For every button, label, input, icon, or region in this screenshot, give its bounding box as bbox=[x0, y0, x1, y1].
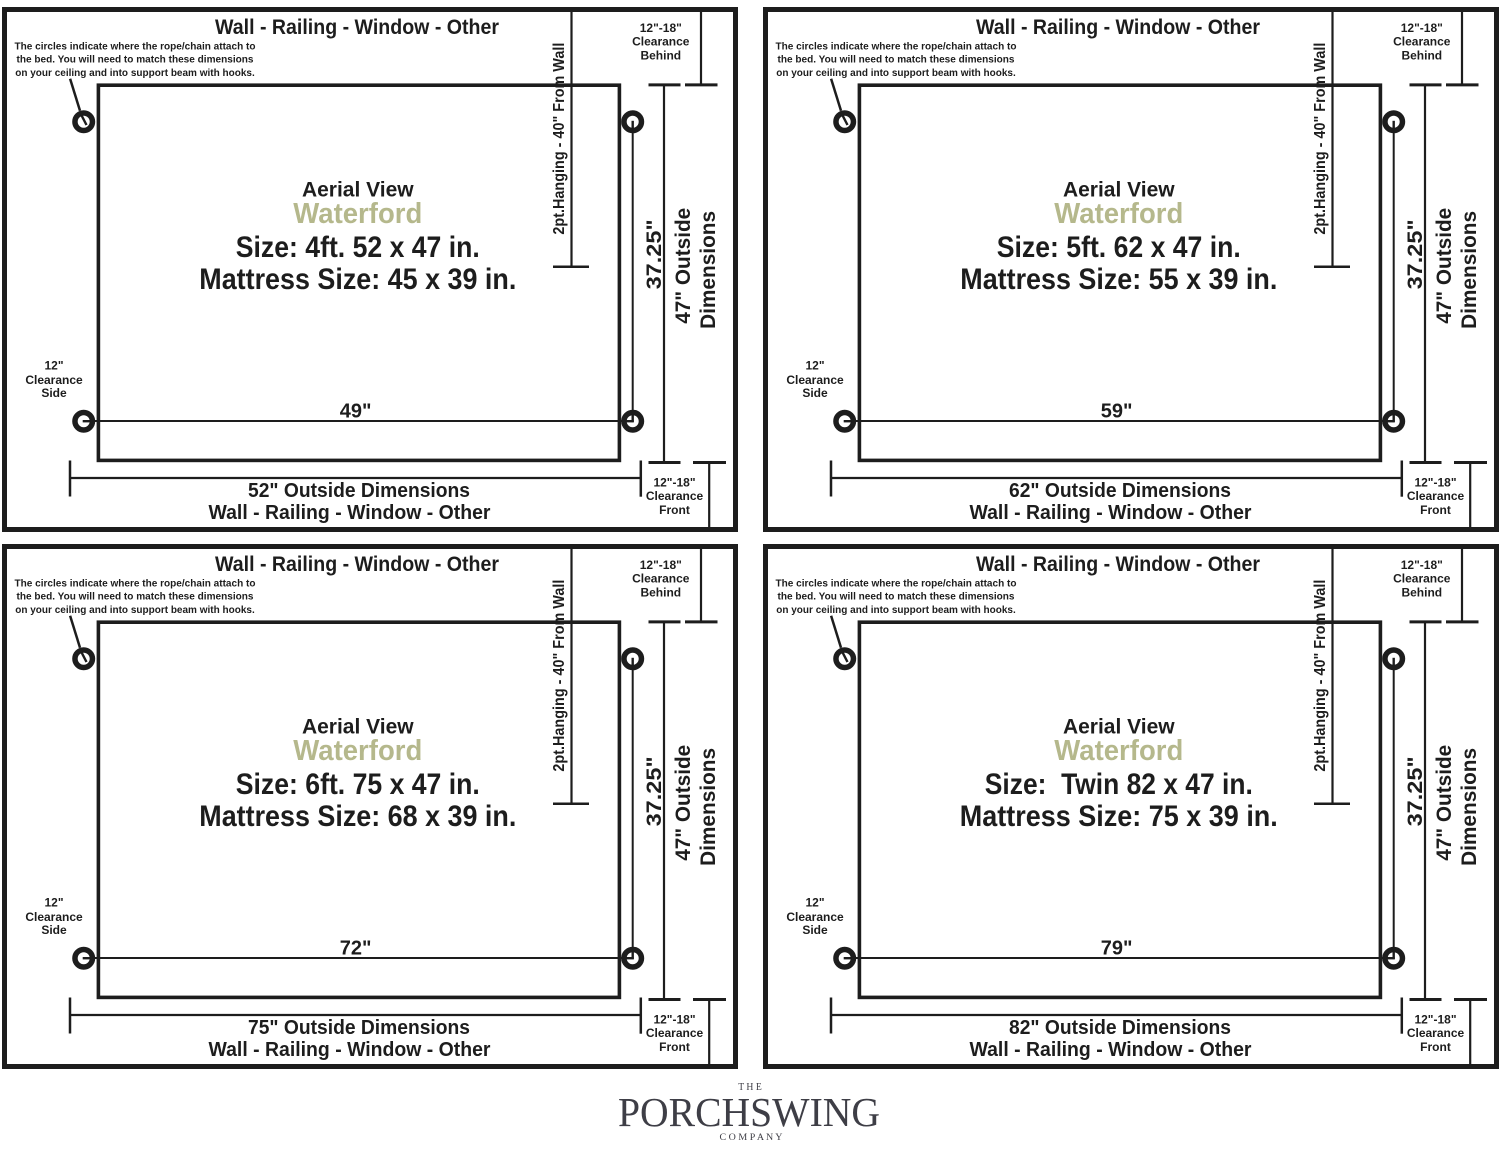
svg-text:on your ceiling and into suppo: on your ceiling and into support beam wi… bbox=[776, 604, 1016, 616]
svg-text:Clearance: Clearance bbox=[646, 1026, 704, 1040]
svg-text:Behind: Behind bbox=[640, 586, 681, 600]
svg-text:Clearance: Clearance bbox=[646, 489, 704, 503]
svg-text:The circles indicate where the: The circles indicate where the rope/chai… bbox=[15, 577, 256, 589]
svg-text:12": 12" bbox=[44, 896, 63, 910]
svg-text:Clearance: Clearance bbox=[1393, 35, 1451, 49]
svg-text:Wall - Railing - Window - Othe: Wall - Railing - Window - Other bbox=[215, 553, 499, 576]
svg-text:on your ceiling and into suppo: on your ceiling and into support beam wi… bbox=[776, 67, 1016, 79]
svg-text:12": 12" bbox=[44, 359, 63, 373]
svg-text:Clearance: Clearance bbox=[632, 572, 690, 586]
svg-text:37.25": 37.25" bbox=[643, 219, 666, 289]
svg-text:12"-18": 12"-18" bbox=[1401, 21, 1443, 35]
svg-text:2pt.Hanging - 40" From Wall: 2pt.Hanging - 40" From Wall bbox=[551, 580, 568, 772]
svg-text:Dimensions: Dimensions bbox=[1458, 748, 1481, 866]
svg-text:Dimensions: Dimensions bbox=[697, 211, 720, 329]
svg-text:Waterford: Waterford bbox=[1054, 198, 1183, 230]
svg-text:37.25": 37.25" bbox=[1404, 756, 1427, 826]
svg-text:37.25": 37.25" bbox=[1404, 219, 1427, 289]
svg-text:Waterford: Waterford bbox=[293, 198, 422, 230]
svg-text:The circles indicate where the: The circles indicate where the rope/chai… bbox=[15, 40, 256, 52]
svg-text:12"-18": 12"-18" bbox=[653, 475, 695, 489]
svg-text:82" Outside Dimensions: 82" Outside Dimensions bbox=[1009, 1017, 1231, 1039]
svg-text:Wall - Railing - Window - Othe: Wall - Railing - Window - Other bbox=[209, 1039, 491, 1061]
svg-text:Wall - Railing - Window - Othe: Wall - Railing - Window - Other bbox=[970, 1039, 1252, 1061]
svg-text:47" Outside: 47" Outside bbox=[672, 208, 695, 324]
svg-text:Wall - Railing - Window - Othe: Wall - Railing - Window - Other bbox=[976, 16, 1260, 39]
svg-text:Waterford: Waterford bbox=[293, 735, 422, 767]
svg-text:Front: Front bbox=[659, 503, 690, 517]
svg-text:Behind: Behind bbox=[1401, 49, 1442, 63]
svg-text:Front: Front bbox=[1420, 1040, 1451, 1054]
svg-text:Side: Side bbox=[41, 923, 67, 937]
svg-text:Clearance: Clearance bbox=[1393, 572, 1451, 586]
svg-text:Mattress Size: 68 x 39 in.: Mattress Size: 68 x 39 in. bbox=[199, 800, 516, 833]
svg-text:Clearance: Clearance bbox=[25, 373, 83, 387]
svg-text:on your ceiling and into suppo: on your ceiling and into support beam wi… bbox=[15, 67, 255, 79]
svg-text:Clearance: Clearance bbox=[786, 910, 844, 924]
svg-text:12"-18": 12"-18" bbox=[640, 21, 682, 35]
svg-text:12"-18": 12"-18" bbox=[653, 1012, 695, 1026]
svg-text:Size: Twin 82 x 47 in.: Size: Twin 82 x 47 in. bbox=[985, 768, 1253, 801]
svg-text:Dimensions: Dimensions bbox=[697, 748, 720, 866]
svg-text:The circles indicate where the: The circles indicate where the rope/chai… bbox=[776, 40, 1017, 52]
svg-text:Size: 5ft. 62 x 47 in.: Size: 5ft. 62 x 47 in. bbox=[997, 231, 1241, 264]
svg-text:The circles indicate where the: The circles indicate where the rope/chai… bbox=[776, 577, 1017, 589]
svg-text:62" Outside Dimensions: 62" Outside Dimensions bbox=[1009, 480, 1231, 502]
svg-text:37.25": 37.25" bbox=[643, 756, 666, 826]
svg-text:2pt.Hanging - 40" From Wall: 2pt.Hanging - 40" From Wall bbox=[551, 43, 568, 235]
svg-text:79": 79" bbox=[1101, 938, 1133, 960]
svg-text:Size: 4ft. 52 x 47 in.: Size: 4ft. 52 x 47 in. bbox=[236, 231, 480, 264]
svg-text:the bed. You will need to matc: the bed. You will need to match these di… bbox=[17, 54, 254, 66]
svg-text:Dimensions: Dimensions bbox=[1458, 211, 1481, 329]
svg-text:12": 12" bbox=[805, 896, 824, 910]
svg-text:12": 12" bbox=[805, 359, 824, 373]
svg-text:Wall - Railing - Window - Othe: Wall - Railing - Window - Other bbox=[215, 16, 499, 39]
svg-text:Size: 6ft. 75 x 47 in.: Size: 6ft. 75 x 47 in. bbox=[236, 768, 480, 801]
svg-text:Wall - Railing - Window - Othe: Wall - Railing - Window - Other bbox=[209, 502, 491, 524]
svg-text:the bed. You will need to matc: the bed. You will need to match these di… bbox=[778, 591, 1015, 603]
svg-text:Clearance: Clearance bbox=[1407, 489, 1465, 503]
svg-text:Behind: Behind bbox=[640, 49, 681, 63]
svg-text:the bed. You will need to matc: the bed. You will need to match these di… bbox=[17, 591, 254, 603]
svg-text:47" Outside: 47" Outside bbox=[672, 745, 695, 861]
svg-text:the bed. You will need to matc: the bed. You will need to match these di… bbox=[778, 54, 1015, 66]
svg-text:12"-18": 12"-18" bbox=[1414, 1012, 1456, 1026]
svg-text:47" Outside: 47" Outside bbox=[1433, 745, 1456, 861]
svg-text:Waterford: Waterford bbox=[1054, 735, 1183, 767]
svg-text:47" Outside: 47" Outside bbox=[1433, 208, 1456, 324]
svg-text:Clearance: Clearance bbox=[632, 35, 690, 49]
svg-text:59": 59" bbox=[1101, 401, 1133, 423]
svg-text:2pt.Hanging - 40" From Wall: 2pt.Hanging - 40" From Wall bbox=[1312, 580, 1329, 772]
svg-text:Wall - Railing - Window - Othe: Wall - Railing - Window - Other bbox=[976, 553, 1260, 576]
svg-text:Clearance: Clearance bbox=[1407, 1026, 1465, 1040]
svg-text:52" Outside Dimensions: 52" Outside Dimensions bbox=[248, 480, 470, 502]
svg-text:Mattress Size: 75 x 39 in.: Mattress Size: 75 x 39 in. bbox=[960, 800, 1278, 833]
svg-text:Front: Front bbox=[1420, 503, 1451, 517]
svg-text:Side: Side bbox=[802, 923, 828, 937]
svg-text:Mattress Size: 45 x 39 in.: Mattress Size: 45 x 39 in. bbox=[199, 263, 516, 296]
svg-text:on your ceiling and into suppo: on your ceiling and into support beam wi… bbox=[15, 604, 255, 616]
svg-text:Behind: Behind bbox=[1401, 586, 1442, 600]
svg-text:Clearance: Clearance bbox=[25, 910, 83, 924]
svg-text:Front: Front bbox=[659, 1040, 690, 1054]
svg-text:75" Outside Dimensions: 75" Outside Dimensions bbox=[248, 1017, 470, 1039]
svg-text:12"-18": 12"-18" bbox=[1414, 475, 1456, 489]
svg-text:12"-18": 12"-18" bbox=[1401, 558, 1443, 572]
svg-text:Clearance: Clearance bbox=[786, 373, 844, 387]
svg-text:Side: Side bbox=[41, 386, 67, 400]
svg-text:12"-18": 12"-18" bbox=[640, 558, 682, 572]
svg-text:Wall - Railing - Window - Othe: Wall - Railing - Window - Other bbox=[970, 502, 1252, 524]
svg-text:Side: Side bbox=[802, 386, 828, 400]
svg-text:PORCHSWING: PORCHSWING bbox=[618, 1089, 880, 1135]
svg-text:Mattress Size: 55 x 39 in.: Mattress Size: 55 x 39 in. bbox=[960, 263, 1277, 296]
svg-text:C O M P A N Y: C O M P A N Y bbox=[720, 1132, 784, 1142]
svg-text:72": 72" bbox=[340, 938, 372, 960]
svg-text:49": 49" bbox=[340, 401, 372, 423]
svg-text:2pt.Hanging - 40" From Wall: 2pt.Hanging - 40" From Wall bbox=[1312, 43, 1329, 235]
